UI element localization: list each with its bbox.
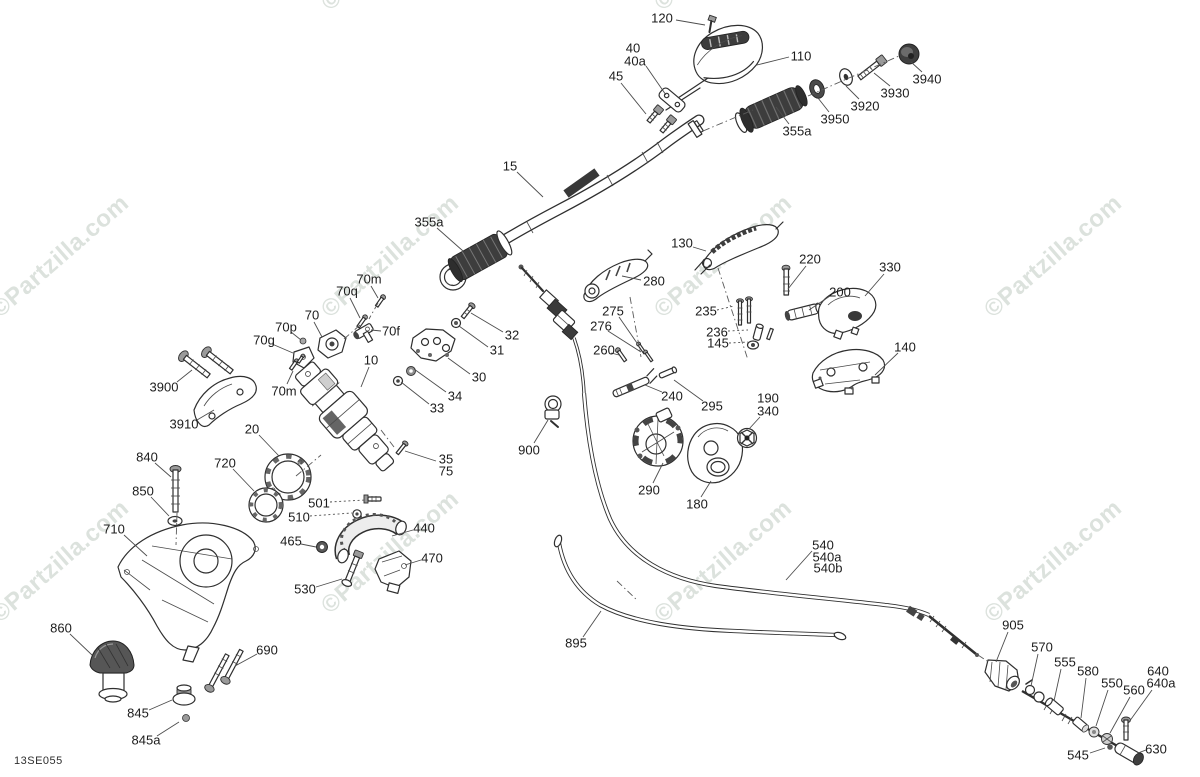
callout-540b: 540b (814, 561, 843, 576)
part-280-lever-drawing (584, 250, 652, 302)
leader-line-130 (693, 247, 706, 251)
callout-32: 32 (505, 328, 519, 343)
part-15-handlebar-drawing (440, 119, 704, 290)
leader-line-545 (1090, 748, 1105, 753)
leader-line-340 (749, 417, 760, 429)
callout-33: 33 (430, 401, 444, 416)
leader-line-465 (301, 544, 316, 547)
leader-line-540 (786, 551, 812, 580)
callout-690: 690 (256, 643, 278, 658)
leader-line-895 (583, 611, 601, 637)
watermark: ©Partzilla.com (979, 189, 1127, 323)
part-236-bushing-drawing (753, 323, 764, 340)
callout-45: 45 (609, 69, 623, 84)
part-3910-bracket-drawing (194, 376, 256, 426)
callout-235: 235 (695, 304, 717, 319)
leader-line-240 (645, 385, 662, 392)
leader-line-840 (155, 463, 171, 477)
callout-110: 110 (791, 49, 812, 64)
part-cable-adjuster-drawing (519, 265, 585, 394)
callout-501: 501 (308, 496, 330, 511)
part-720-ring-drawing (249, 488, 283, 522)
callout-340: 340 (757, 404, 779, 419)
watermark: ©Partzilla.com (979, 494, 1127, 628)
part-850-washer-drawing (168, 517, 182, 526)
callout-70m: 70m (271, 384, 296, 399)
leader-line-3940 (911, 62, 922, 72)
leader-line-236 (728, 330, 748, 331)
leader-line-501 (330, 500, 365, 502)
leader-line-555 (1054, 669, 1061, 701)
watermark: ©Partzilla.com (649, 494, 797, 628)
callout-15: 15 (503, 159, 517, 174)
part-510-washer-drawing (353, 510, 361, 518)
callout-40a: 40a (624, 54, 646, 69)
part-845-nut-drawing (173, 685, 195, 705)
callout-200: 200 (829, 285, 851, 300)
leader-line-15 (517, 172, 543, 197)
part-3930-bolt-drawing (857, 55, 888, 82)
leader-line-220 (788, 266, 806, 289)
leader-line-720 (233, 469, 254, 491)
callout-20: 20 (245, 422, 259, 437)
leader-line-30 (448, 358, 470, 374)
callout-355a: 355a (783, 124, 813, 139)
part-900-clamp-drawing (545, 396, 561, 427)
callout-845: 845 (127, 706, 149, 721)
callout-550: 550 (1101, 676, 1123, 691)
leader-line-34 (414, 369, 446, 392)
callout-3930: 3930 (881, 86, 910, 101)
callout-860: 860 (50, 621, 72, 636)
callout-70p: 70p (275, 320, 297, 335)
assembly-centerline (369, 303, 378, 319)
part-3940-cap-drawing (899, 44, 919, 64)
callout-3940: 3940 (913, 72, 942, 87)
callout-70f: 70f (382, 324, 400, 339)
part-240-rod-drawing (610, 369, 658, 398)
callout-905: 905 (1002, 618, 1024, 633)
callout-3920: 3920 (851, 99, 880, 114)
callout-440: 440 (413, 521, 435, 536)
callout-570: 570 (1031, 640, 1053, 655)
callout-280: 280 (643, 274, 665, 289)
callout-260: 260 (593, 343, 615, 358)
callout-580: 580 (1077, 664, 1099, 679)
part-845a-washer-drawing (183, 715, 190, 722)
callout-295: 295 (701, 399, 723, 414)
part-905-boot-drawing (985, 660, 1022, 692)
diagram-code: 13SE055 (14, 755, 63, 767)
leader-line-845 (149, 700, 172, 710)
leader-line-570 (1031, 654, 1038, 686)
part-45-bolts-drawing (646, 105, 677, 135)
callout-530: 530 (294, 582, 316, 597)
leader-line-860 (70, 634, 92, 655)
leader-line-900 (534, 420, 548, 443)
callout-70q: 70q (336, 284, 358, 299)
part-235-screws-drawing (737, 297, 753, 325)
callout-555: 555 (1054, 655, 1076, 670)
callout-3910: 3910 (170, 417, 199, 432)
leader-line-145 (729, 342, 748, 343)
callout-290: 290 (638, 483, 660, 498)
part-140-bracket-drawing (812, 349, 884, 394)
leader-line-905 (996, 632, 1008, 662)
leader-line-275 (619, 317, 637, 343)
leader-line-70g (272, 344, 293, 353)
leader-line-20 (259, 435, 279, 456)
callout-220: 220 (799, 252, 821, 267)
callout-3900: 3900 (150, 380, 179, 395)
callout-710: 710 (103, 522, 125, 537)
parts-diagram-page: ©Partzilla.com©Partzilla.com©Partzilla.c… (0, 0, 1200, 777)
callout-355a: 355a (415, 215, 445, 230)
callout-465: 465 (280, 534, 302, 549)
callout-10: 10 (364, 353, 378, 368)
callout-895: 895 (565, 636, 587, 651)
callout-630: 630 (1145, 742, 1167, 757)
watermark: ©Partzilla.com (316, 189, 464, 323)
callout-276: 276 (590, 319, 612, 334)
part-190-340-nut-drawing (738, 429, 757, 448)
leader-line-330 (865, 274, 884, 296)
callout-510: 510 (288, 510, 310, 525)
leader-line-580 (1081, 678, 1086, 718)
watermark: ©Partzilla.com (0, 494, 134, 628)
callout-330: 330 (879, 260, 901, 275)
callout-845a: 845a (132, 733, 162, 748)
callout-180: 180 (686, 497, 708, 512)
part-180-housing-drawing (688, 424, 743, 483)
leader-line-35 (405, 451, 436, 461)
parts-diagram: ©Partzilla.com©Partzilla.com©Partzilla.c… (0, 0, 1200, 777)
leader-line-40a (646, 66, 666, 95)
leader-line-3950 (818, 98, 829, 112)
leader-line-550 (1096, 690, 1108, 726)
callout-70g: 70g (253, 333, 275, 348)
leader-line-110 (757, 57, 789, 65)
part-501-screw-drawing (364, 495, 381, 503)
part-220-screw-drawing (782, 265, 790, 295)
callout-720: 720 (214, 456, 236, 471)
leader-line-120 (676, 20, 705, 25)
leader-line-3920 (846, 86, 859, 99)
part-710-bracket-drawing (118, 523, 259, 662)
leader-line-32 (471, 313, 503, 332)
leader-line-3900 (177, 370, 192, 382)
callout-560: 560 (1123, 683, 1145, 698)
leader-line-850 (151, 497, 169, 516)
leader-line-33 (401, 382, 429, 404)
callout-130: 130 (671, 236, 693, 251)
callout-120: 120 (651, 11, 673, 26)
callout-30: 30 (472, 370, 486, 385)
leader-line-70 (314, 322, 322, 337)
watermark: ©Partzilla.com (316, 0, 464, 16)
callout-850: 850 (132, 484, 154, 499)
callout-70m: 70m (356, 272, 381, 287)
part-290-bracket-drawing (630, 408, 686, 470)
part-120-screw-drawing (704, 15, 716, 32)
callout-3950: 3950 (821, 112, 850, 127)
assembly-centerline (617, 581, 638, 601)
leader-line-10 (361, 367, 369, 387)
part-drawings (90, 15, 1146, 767)
part-110-housing-drawing (657, 19, 770, 114)
callout-275: 275 (602, 304, 624, 319)
leader-line-510 (310, 513, 352, 516)
callout-545: 545 (1067, 748, 1089, 763)
leader-line-180 (701, 481, 711, 497)
leader-line-31 (459, 326, 488, 347)
leader-line-355a (437, 228, 463, 251)
callout-640a: 640a (1147, 676, 1177, 691)
callout-240: 240 (661, 389, 683, 404)
part-465-nut-drawing (317, 542, 328, 553)
callout-34: 34 (448, 389, 462, 404)
part-690-screws-drawing (203, 648, 245, 694)
callout-140: 140 (894, 340, 916, 355)
part-30-cluster-drawing (394, 302, 477, 456)
callout-31: 31 (490, 343, 504, 358)
callout-145: 145 (707, 336, 729, 351)
leader-line-70m (371, 286, 378, 298)
part-295-pin-drawing (658, 366, 677, 379)
leader-line-70m (287, 371, 293, 384)
callout-470: 470 (421, 551, 443, 566)
part-860-damper-drawing (90, 641, 134, 702)
leader-line-45 (621, 83, 646, 114)
callout-75: 75 (439, 464, 453, 479)
watermark: ©Partzilla.com (0, 189, 134, 323)
part-840-screw-drawing (170, 466, 181, 513)
callout-70: 70 (305, 308, 319, 323)
callout-840: 840 (136, 450, 158, 465)
leader-line-3930 (874, 73, 890, 86)
callout-900: 900 (518, 443, 540, 458)
